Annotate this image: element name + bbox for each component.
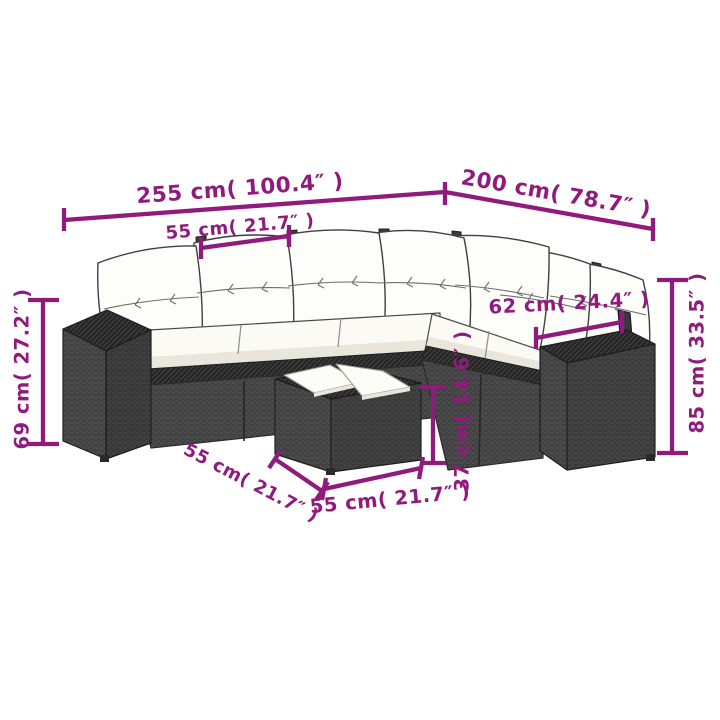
dim-back-height-label: 85 cm( 33.5″ ) [686,272,709,433]
right-armrest-side-face [540,347,567,470]
right-armrest-front-shade [567,344,655,470]
diagram-canvas: 255 cm( 100.4″ ) 200 cm( 78.7″ ) 55 cm( … [0,0,720,720]
sofa-illustration [63,229,655,475]
dim-back-height-line [657,280,688,453]
product-dimension-diagram: 255 cm( 100.4″ ) 200 cm( 78.7″ ) 55 cm( … [0,0,720,720]
dim-armrest-height-label: 69 cm( 27.2″ ) [11,288,34,449]
left-armrest-foot [100,455,109,462]
right-armrest-foot [646,454,655,461]
dim-table-height-label: 37 cm( 14.6″ ) [451,330,474,491]
dim-overall-depth-label: 200 cm( 78.7″ ) [459,165,653,222]
left-armrest [63,310,151,462]
left-armrest-front-face [63,329,106,459]
left-armrest-side-shade [106,330,151,459]
table-foot [326,468,335,475]
coffee-table [275,364,421,475]
